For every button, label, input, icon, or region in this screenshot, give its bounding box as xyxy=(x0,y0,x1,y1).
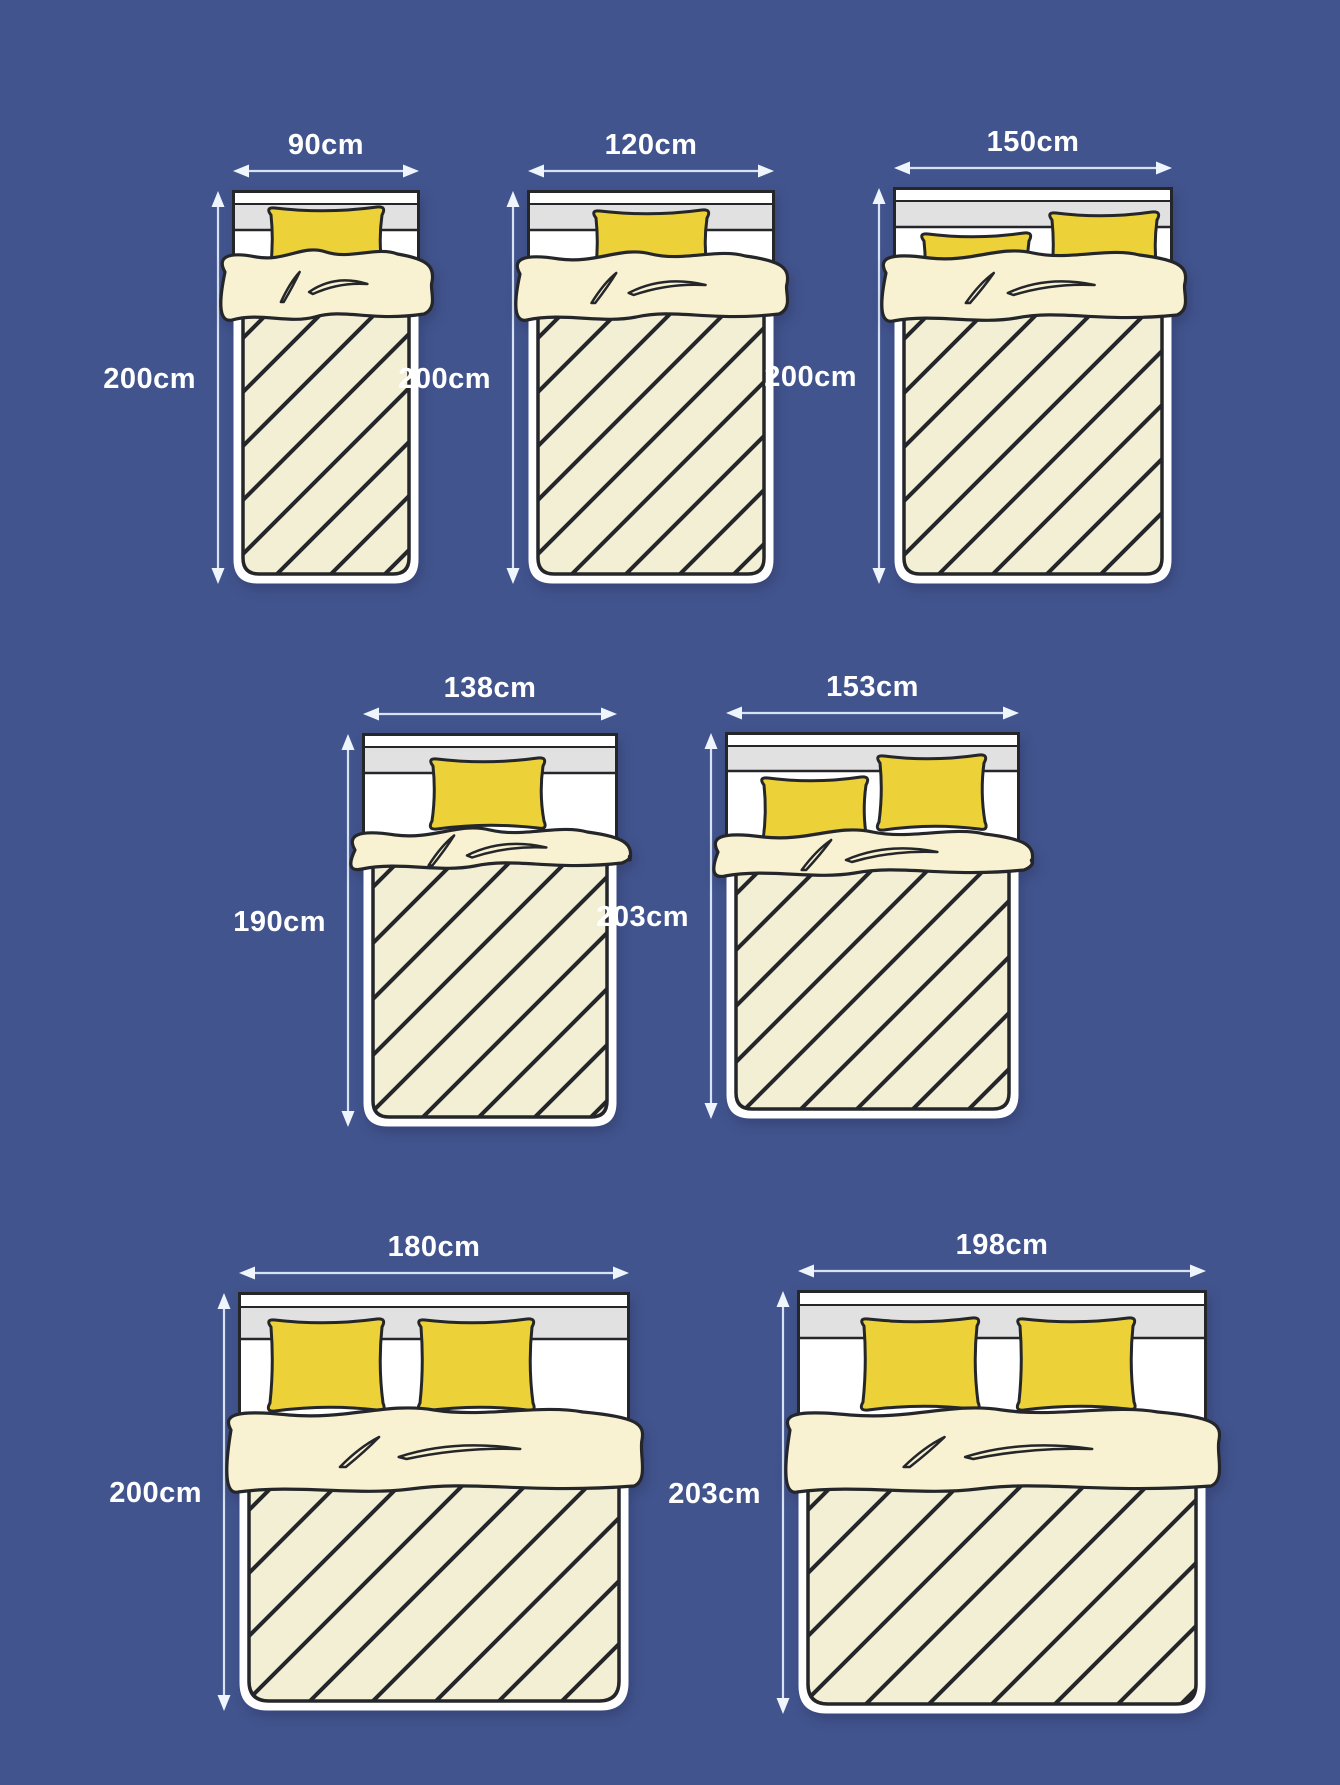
height-label: 203cm xyxy=(621,1477,761,1511)
width-label: 150cm xyxy=(893,125,1173,159)
height-label: 200cm xyxy=(62,1476,202,1510)
bed-153x203 xyxy=(725,732,1020,1120)
width-label: 180cm xyxy=(238,1230,630,1264)
height-arrow xyxy=(774,1290,792,1715)
blanket xyxy=(882,251,1186,321)
width-label: 153cm xyxy=(725,670,1020,704)
height-label: 200cm xyxy=(56,362,196,396)
blanket xyxy=(221,250,433,320)
blanket xyxy=(516,252,788,320)
pillow xyxy=(418,1319,534,1411)
width-arrow xyxy=(893,159,1173,177)
width-arrow xyxy=(527,162,775,180)
height-label: 200cm xyxy=(351,362,491,396)
width-arrow xyxy=(362,705,618,723)
width-arrow xyxy=(797,1262,1207,1280)
bed-180x200 xyxy=(238,1292,630,1712)
pillow xyxy=(861,1318,979,1410)
blanket xyxy=(786,1408,1220,1492)
headboard xyxy=(799,1305,1205,1338)
bed-198x203 xyxy=(797,1290,1207,1715)
width-label: 90cm xyxy=(232,128,420,162)
width-label: 138cm xyxy=(362,671,618,705)
height-arrow xyxy=(215,1292,233,1712)
pillow xyxy=(268,1319,384,1411)
blanket xyxy=(351,828,631,870)
bed-size-diagram: 90cm200cm120cm200cm150cm200cm138cm190cm1… xyxy=(0,0,1340,1785)
height-arrow xyxy=(702,732,720,1120)
blanket xyxy=(714,830,1033,877)
pillow xyxy=(430,758,545,829)
height-arrow xyxy=(339,733,357,1128)
height-label: 203cm xyxy=(549,900,689,934)
pillow xyxy=(1017,1318,1135,1410)
pillow xyxy=(877,755,986,830)
width-arrow xyxy=(725,704,1020,722)
width-label: 198cm xyxy=(797,1228,1207,1262)
width-label: 120cm xyxy=(527,128,775,162)
bed-150x200 xyxy=(893,187,1173,585)
width-arrow xyxy=(238,1264,630,1282)
height-arrow xyxy=(504,190,522,585)
height-label: 190cm xyxy=(186,905,326,939)
height-arrow xyxy=(870,187,888,585)
width-arrow xyxy=(232,162,420,180)
height-label: 200cm xyxy=(717,360,857,394)
height-arrow xyxy=(209,190,227,585)
blanket xyxy=(227,1408,643,1492)
